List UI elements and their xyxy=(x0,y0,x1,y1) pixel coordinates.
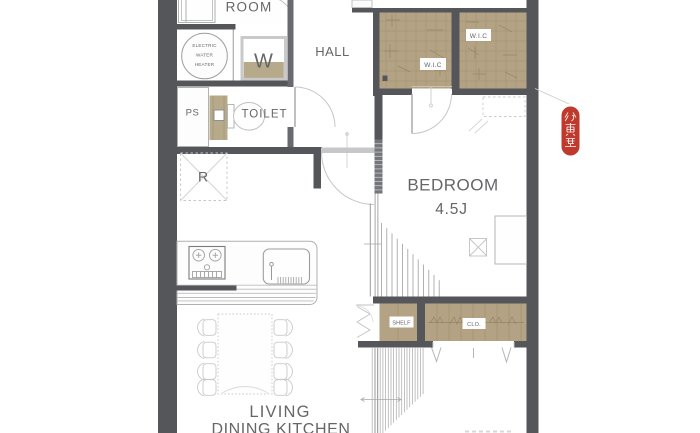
svg-text:W.I.C: W.I.C xyxy=(424,62,441,69)
svg-text:ROOM: ROOM xyxy=(226,0,273,15)
svg-text:4.5J: 4.5J xyxy=(435,201,468,218)
svg-text:CLO.: CLO. xyxy=(467,322,481,328)
svg-text:WATER: WATER xyxy=(196,53,214,58)
svg-text:ELECTRIC: ELECTRIC xyxy=(192,43,217,48)
svg-text:W: W xyxy=(254,51,273,73)
svg-text:W.I.C: W.I.C xyxy=(470,33,487,40)
svg-text:BEDROOM: BEDROOM xyxy=(407,176,498,195)
svg-text:PS: PS xyxy=(186,108,200,119)
svg-text:LIVING: LIVING xyxy=(249,403,310,421)
svg-text:SHELF: SHELF xyxy=(392,321,411,327)
svg-text:TOILET: TOILET xyxy=(241,109,287,121)
svg-text:HALL: HALL xyxy=(315,44,350,59)
svg-text:DINING KITCHEN: DINING KITCHEN xyxy=(211,421,350,433)
svg-text:R: R xyxy=(198,169,208,185)
svg-text:HEATER: HEATER xyxy=(195,62,215,67)
